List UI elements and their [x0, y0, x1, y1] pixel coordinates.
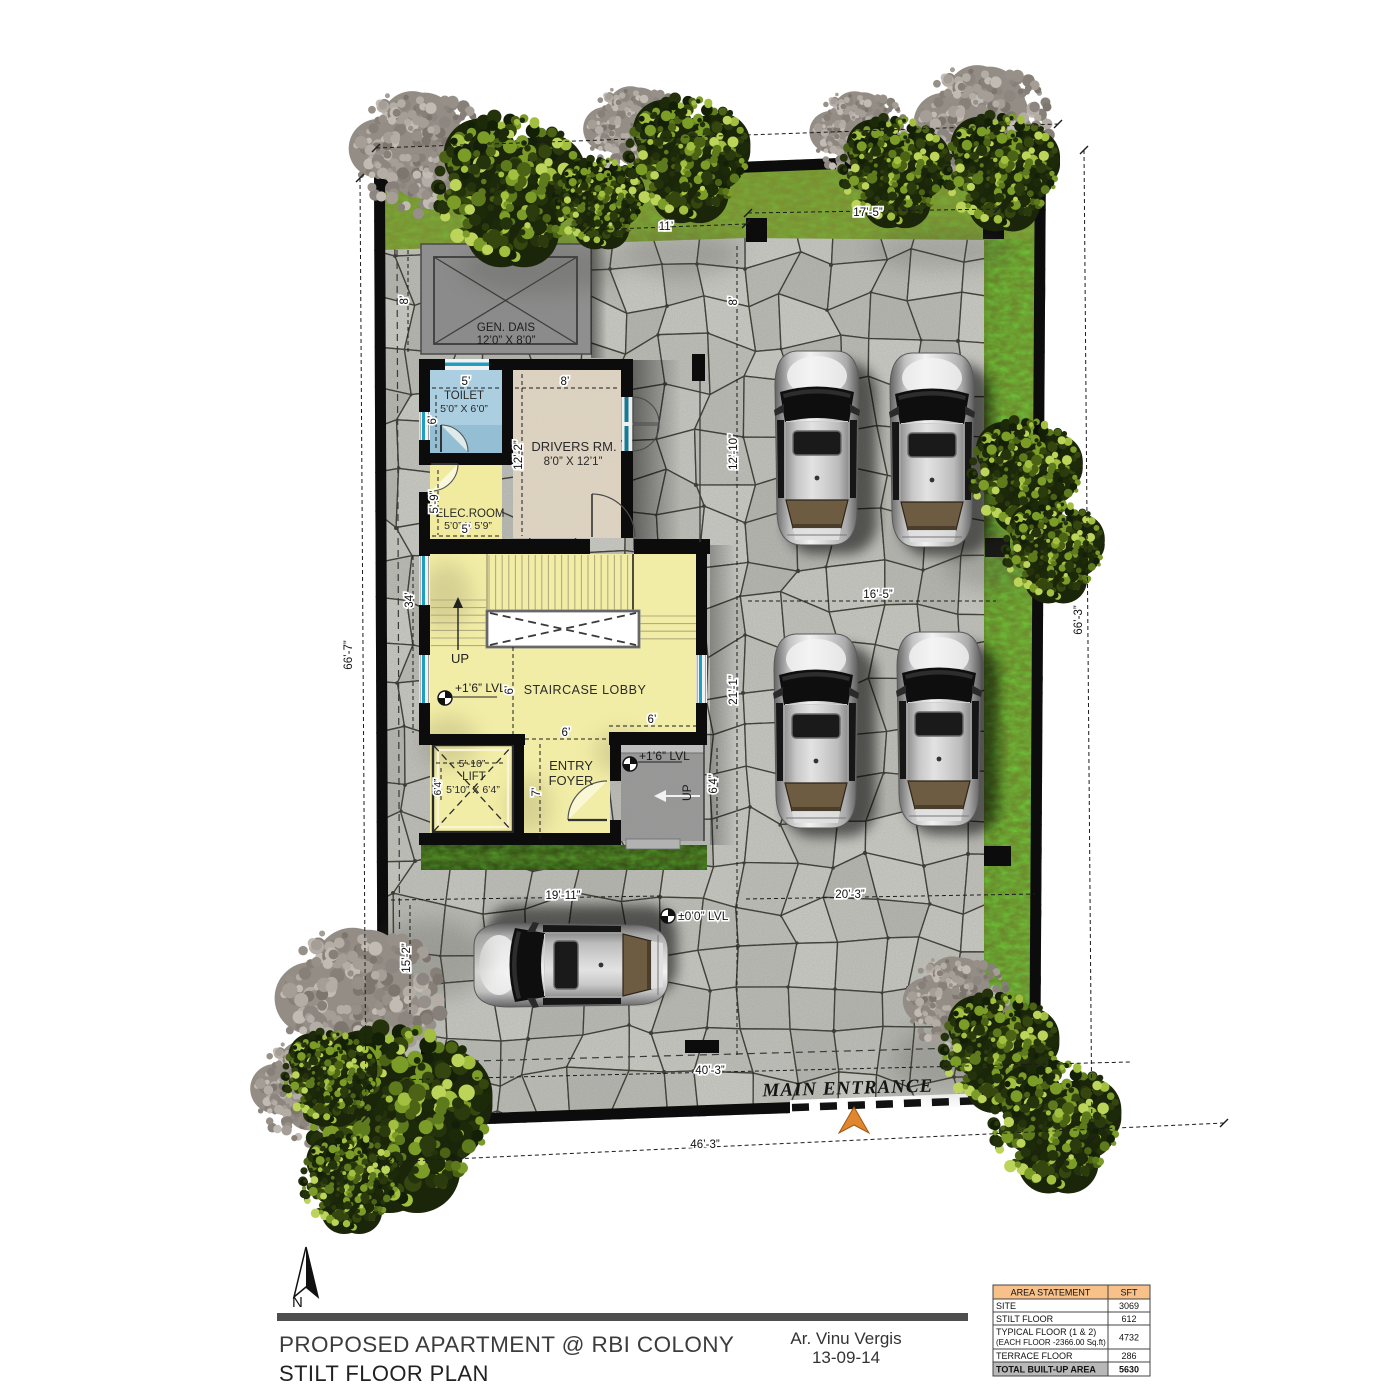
svg-text:8’: 8’	[561, 376, 570, 388]
svg-text:STAIRCASE LOBBY: STAIRCASE LOBBY	[524, 683, 647, 697]
svg-text:12’-10”: 12’-10”	[728, 434, 740, 470]
svg-text:TERRACE FLOOR: TERRACE FLOOR	[996, 1351, 1073, 1361]
svg-text:SFT: SFT	[1121, 1288, 1139, 1298]
svg-text:UP: UP	[451, 651, 469, 666]
svg-text:(EACH FLOOR -2366.00 Sq.ft): (EACH FLOOR -2366.00 Sq.ft)	[996, 1338, 1106, 1347]
svg-text:FOYER: FOYER	[549, 773, 594, 788]
svg-text:6’: 6’	[427, 416, 439, 425]
svg-text:STILT FLOOR PLAN: STILT FLOOR PLAN	[279, 1361, 489, 1386]
svg-text:66’-3”: 66’-3”	[1073, 605, 1085, 635]
svg-text:TYPICAL FLOOR (1 & 2): TYPICAL FLOOR (1 & 2)	[996, 1327, 1096, 1337]
svg-text:6’: 6’	[648, 714, 657, 726]
svg-text:66’-7”: 66’-7”	[343, 640, 355, 670]
svg-text:5’0” X 6’0”: 5’0” X 6’0”	[440, 403, 488, 415]
svg-text:612: 612	[1121, 1314, 1136, 1324]
svg-text:6’4”: 6’4”	[708, 774, 720, 793]
svg-text:20’-3”: 20’-3”	[835, 889, 865, 901]
svg-text:Ar. Vinu Vergis: Ar. Vinu Vergis	[790, 1329, 901, 1348]
svg-text:17’-5”: 17’-5”	[853, 207, 883, 219]
svg-text:46’-3”: 46’-3”	[690, 1139, 720, 1151]
svg-text:5’-9”: 5’-9”	[429, 490, 441, 513]
svg-text:286: 286	[1121, 1351, 1136, 1361]
svg-text:PROPOSED APARTMENT @ RBI COLON: PROPOSED APARTMENT @ RBI COLONY	[279, 1332, 734, 1357]
svg-text:5’-10”: 5’-10”	[459, 758, 486, 770]
svg-text:21’-1”: 21’-1”	[728, 675, 740, 705]
svg-text:6’: 6’	[562, 727, 571, 739]
svg-text:12’0” X 8’0”: 12’0” X 8’0”	[477, 335, 536, 347]
svg-text:16’-5”: 16’-5”	[863, 589, 893, 601]
svg-text:+1’6” LVL: +1’6” LVL	[639, 749, 690, 763]
svg-text:6’4”: 6’4”	[433, 779, 444, 796]
svg-text:GEN. DAIS: GEN. DAIS	[477, 322, 535, 334]
svg-text:8’0” X 12’1”: 8’0” X 12’1”	[544, 456, 603, 468]
svg-text:5’10” X 6’4”: 5’10” X 6’4”	[446, 784, 500, 796]
svg-text:TOTAL BUILT-UP AREA: TOTAL BUILT-UP AREA	[996, 1365, 1096, 1375]
svg-text:13-09-14: 13-09-14	[812, 1348, 880, 1367]
svg-text:LIFT: LIFT	[462, 771, 486, 783]
svg-text:+1’6” LVL: +1’6” LVL	[455, 681, 506, 695]
svg-text:AREA STATEMENT: AREA STATEMENT	[1011, 1288, 1091, 1298]
svg-text:SITE: SITE	[996, 1301, 1016, 1311]
svg-text:STILT FLOOR: STILT FLOOR	[996, 1314, 1054, 1324]
svg-text:34’: 34’	[404, 592, 416, 607]
svg-text:6’: 6’	[504, 686, 516, 695]
svg-text:DRIVERS RM.: DRIVERS RM.	[531, 439, 616, 454]
svg-text:ELEC.ROOM: ELEC.ROOM	[435, 508, 504, 520]
svg-text:19’-11”: 19’-11”	[546, 890, 581, 902]
svg-text:5’: 5’	[462, 524, 471, 536]
svg-text:±0’0” LVL: ±0’0” LVL	[678, 909, 729, 923]
svg-text:N: N	[292, 1294, 303, 1311]
svg-text:8’: 8’	[728, 297, 740, 306]
svg-text:UP: UP	[680, 784, 694, 801]
svg-text:40’-3”: 40’-3”	[695, 1065, 725, 1077]
svg-text:5630: 5630	[1119, 1365, 1139, 1375]
svg-text:5’: 5’	[462, 376, 471, 388]
svg-text:3069: 3069	[1119, 1301, 1139, 1311]
svg-text:7’: 7’	[531, 788, 543, 797]
svg-text:4732: 4732	[1119, 1333, 1139, 1343]
svg-text:12’-2”: 12’-2”	[513, 440, 525, 470]
svg-text:ENTRY: ENTRY	[549, 758, 593, 773]
svg-text:15’-2”: 15’-2”	[401, 943, 413, 973]
svg-text:11’: 11’	[659, 221, 674, 233]
svg-text:8’: 8’	[399, 296, 411, 305]
svg-text:TOILET: TOILET	[444, 390, 484, 402]
